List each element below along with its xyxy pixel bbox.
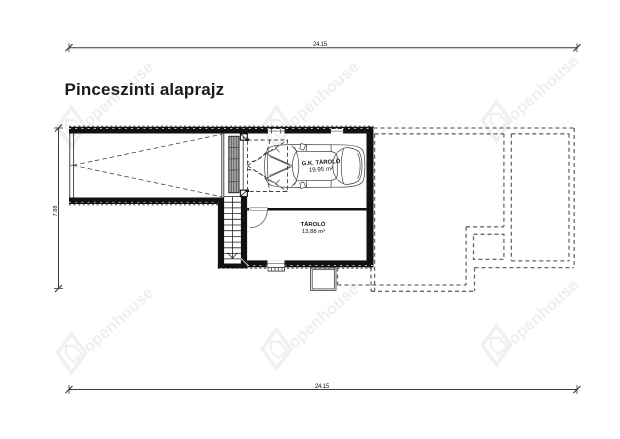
svg-text:TÁROLÓ: TÁROLÓ — [301, 220, 326, 228]
svg-text:13,88 m²: 13,88 m² — [302, 229, 325, 235]
svg-text:Pinceszinti alaprajz: Pinceszinti alaprajz — [65, 80, 225, 99]
svg-text:24.15: 24.15 — [313, 42, 328, 48]
svg-text:7.88: 7.88 — [53, 206, 59, 217]
svg-text:24.15: 24.15 — [315, 384, 330, 390]
svg-text:19.95 m²: 19.95 m² — [309, 165, 333, 173]
